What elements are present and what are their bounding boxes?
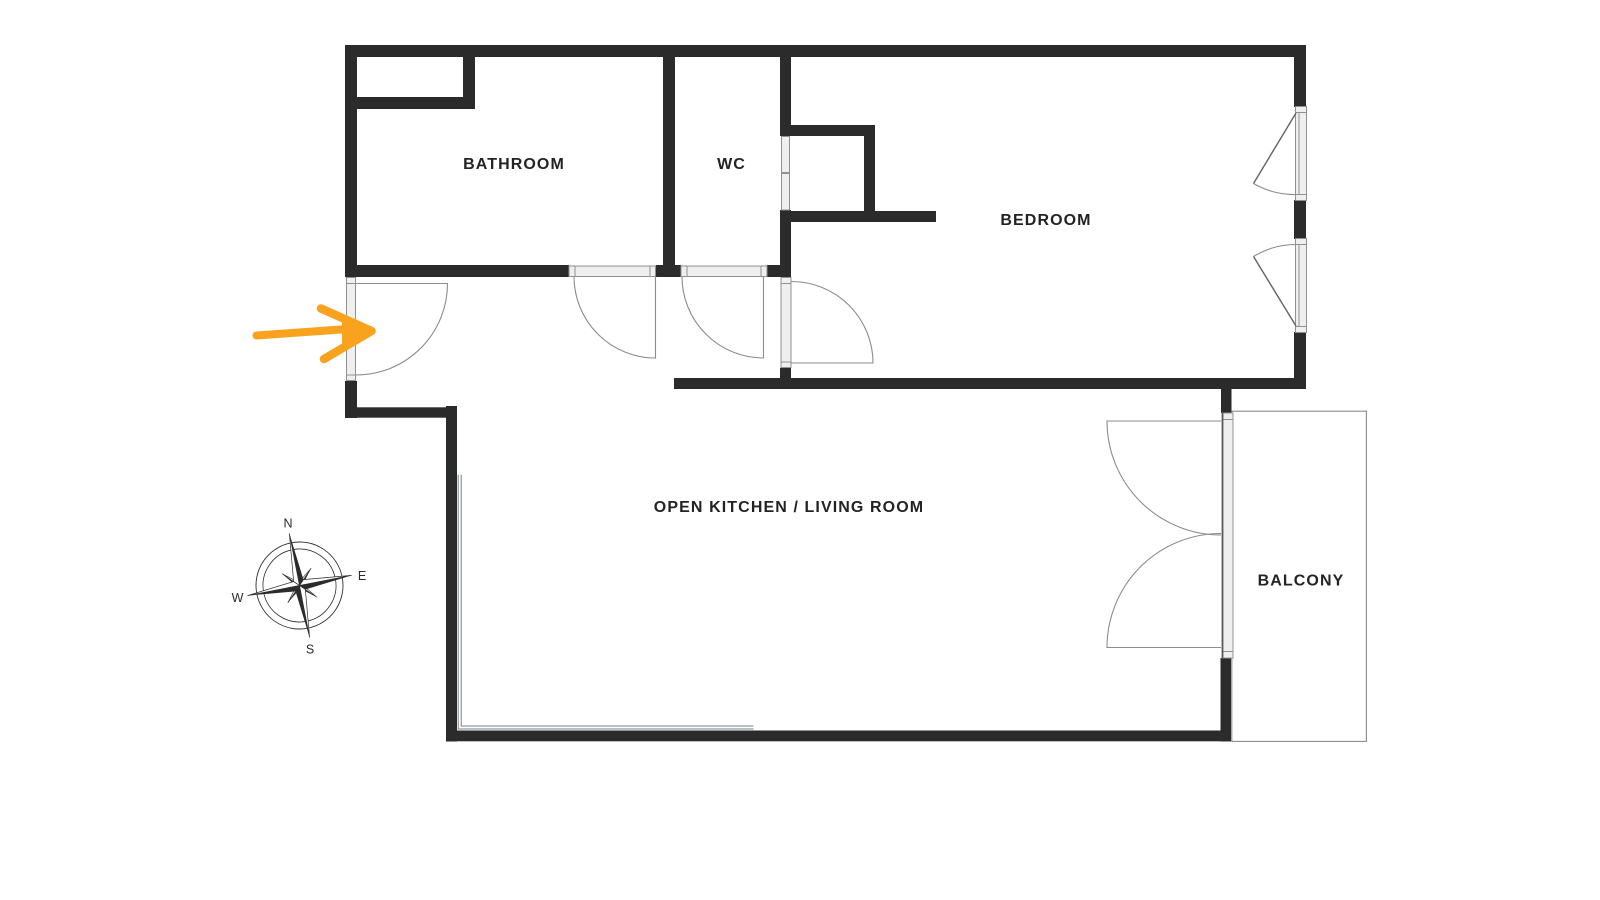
svg-text:S: S	[306, 643, 314, 657]
svg-text:BEDROOM: BEDROOM	[1000, 212, 1091, 229]
svg-text:BATHROOM: BATHROOM	[463, 156, 565, 173]
svg-text:E: E	[358, 569, 366, 583]
svg-text:N: N	[283, 517, 292, 531]
svg-text:WC: WC	[717, 156, 746, 173]
svg-text:OPEN KITCHEN / LIVING ROOM: OPEN KITCHEN / LIVING ROOM	[654, 499, 924, 516]
svg-text:BALCONY: BALCONY	[1258, 573, 1345, 590]
svg-text:W: W	[232, 591, 244, 605]
